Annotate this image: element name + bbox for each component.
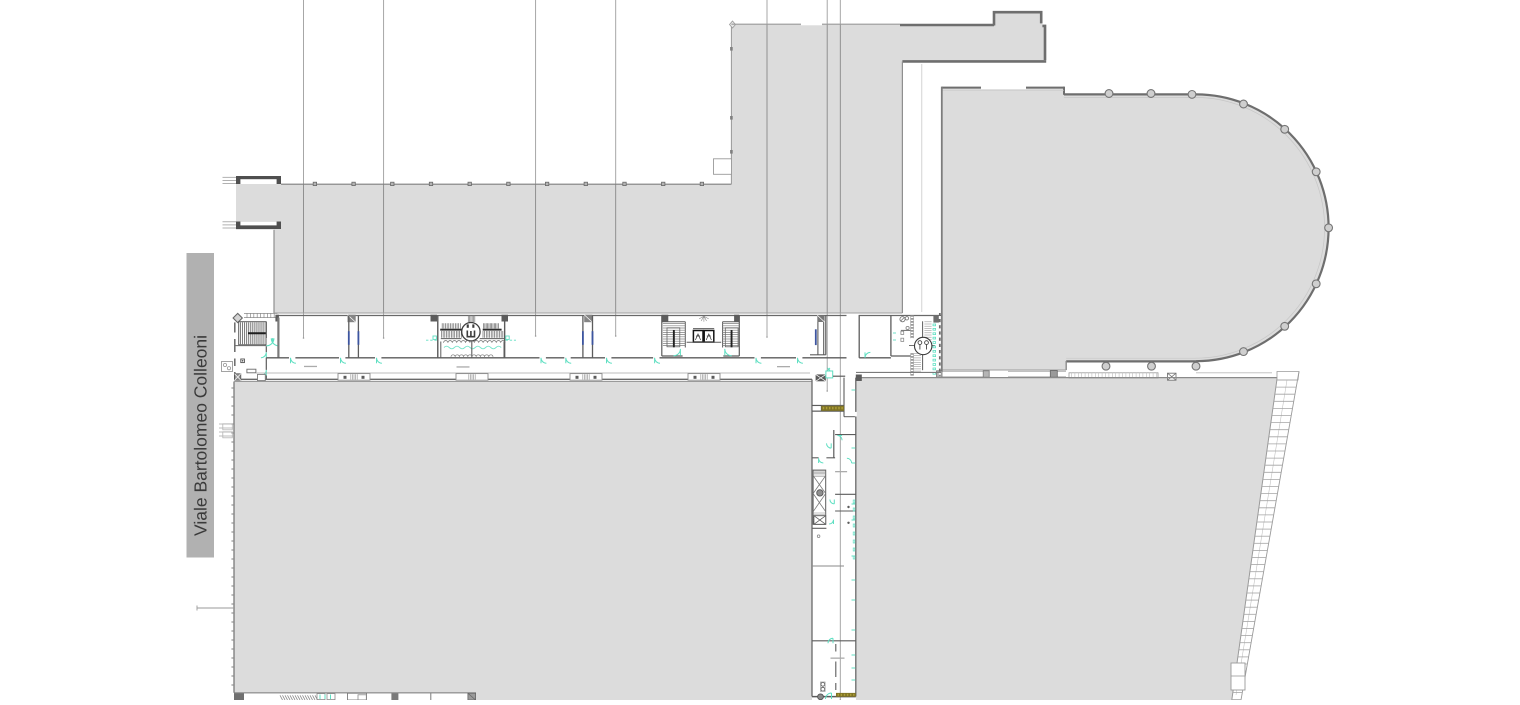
svg-text:Viale Bartolomeo Colleoni: Viale Bartolomeo Colleoni [191,335,211,536]
